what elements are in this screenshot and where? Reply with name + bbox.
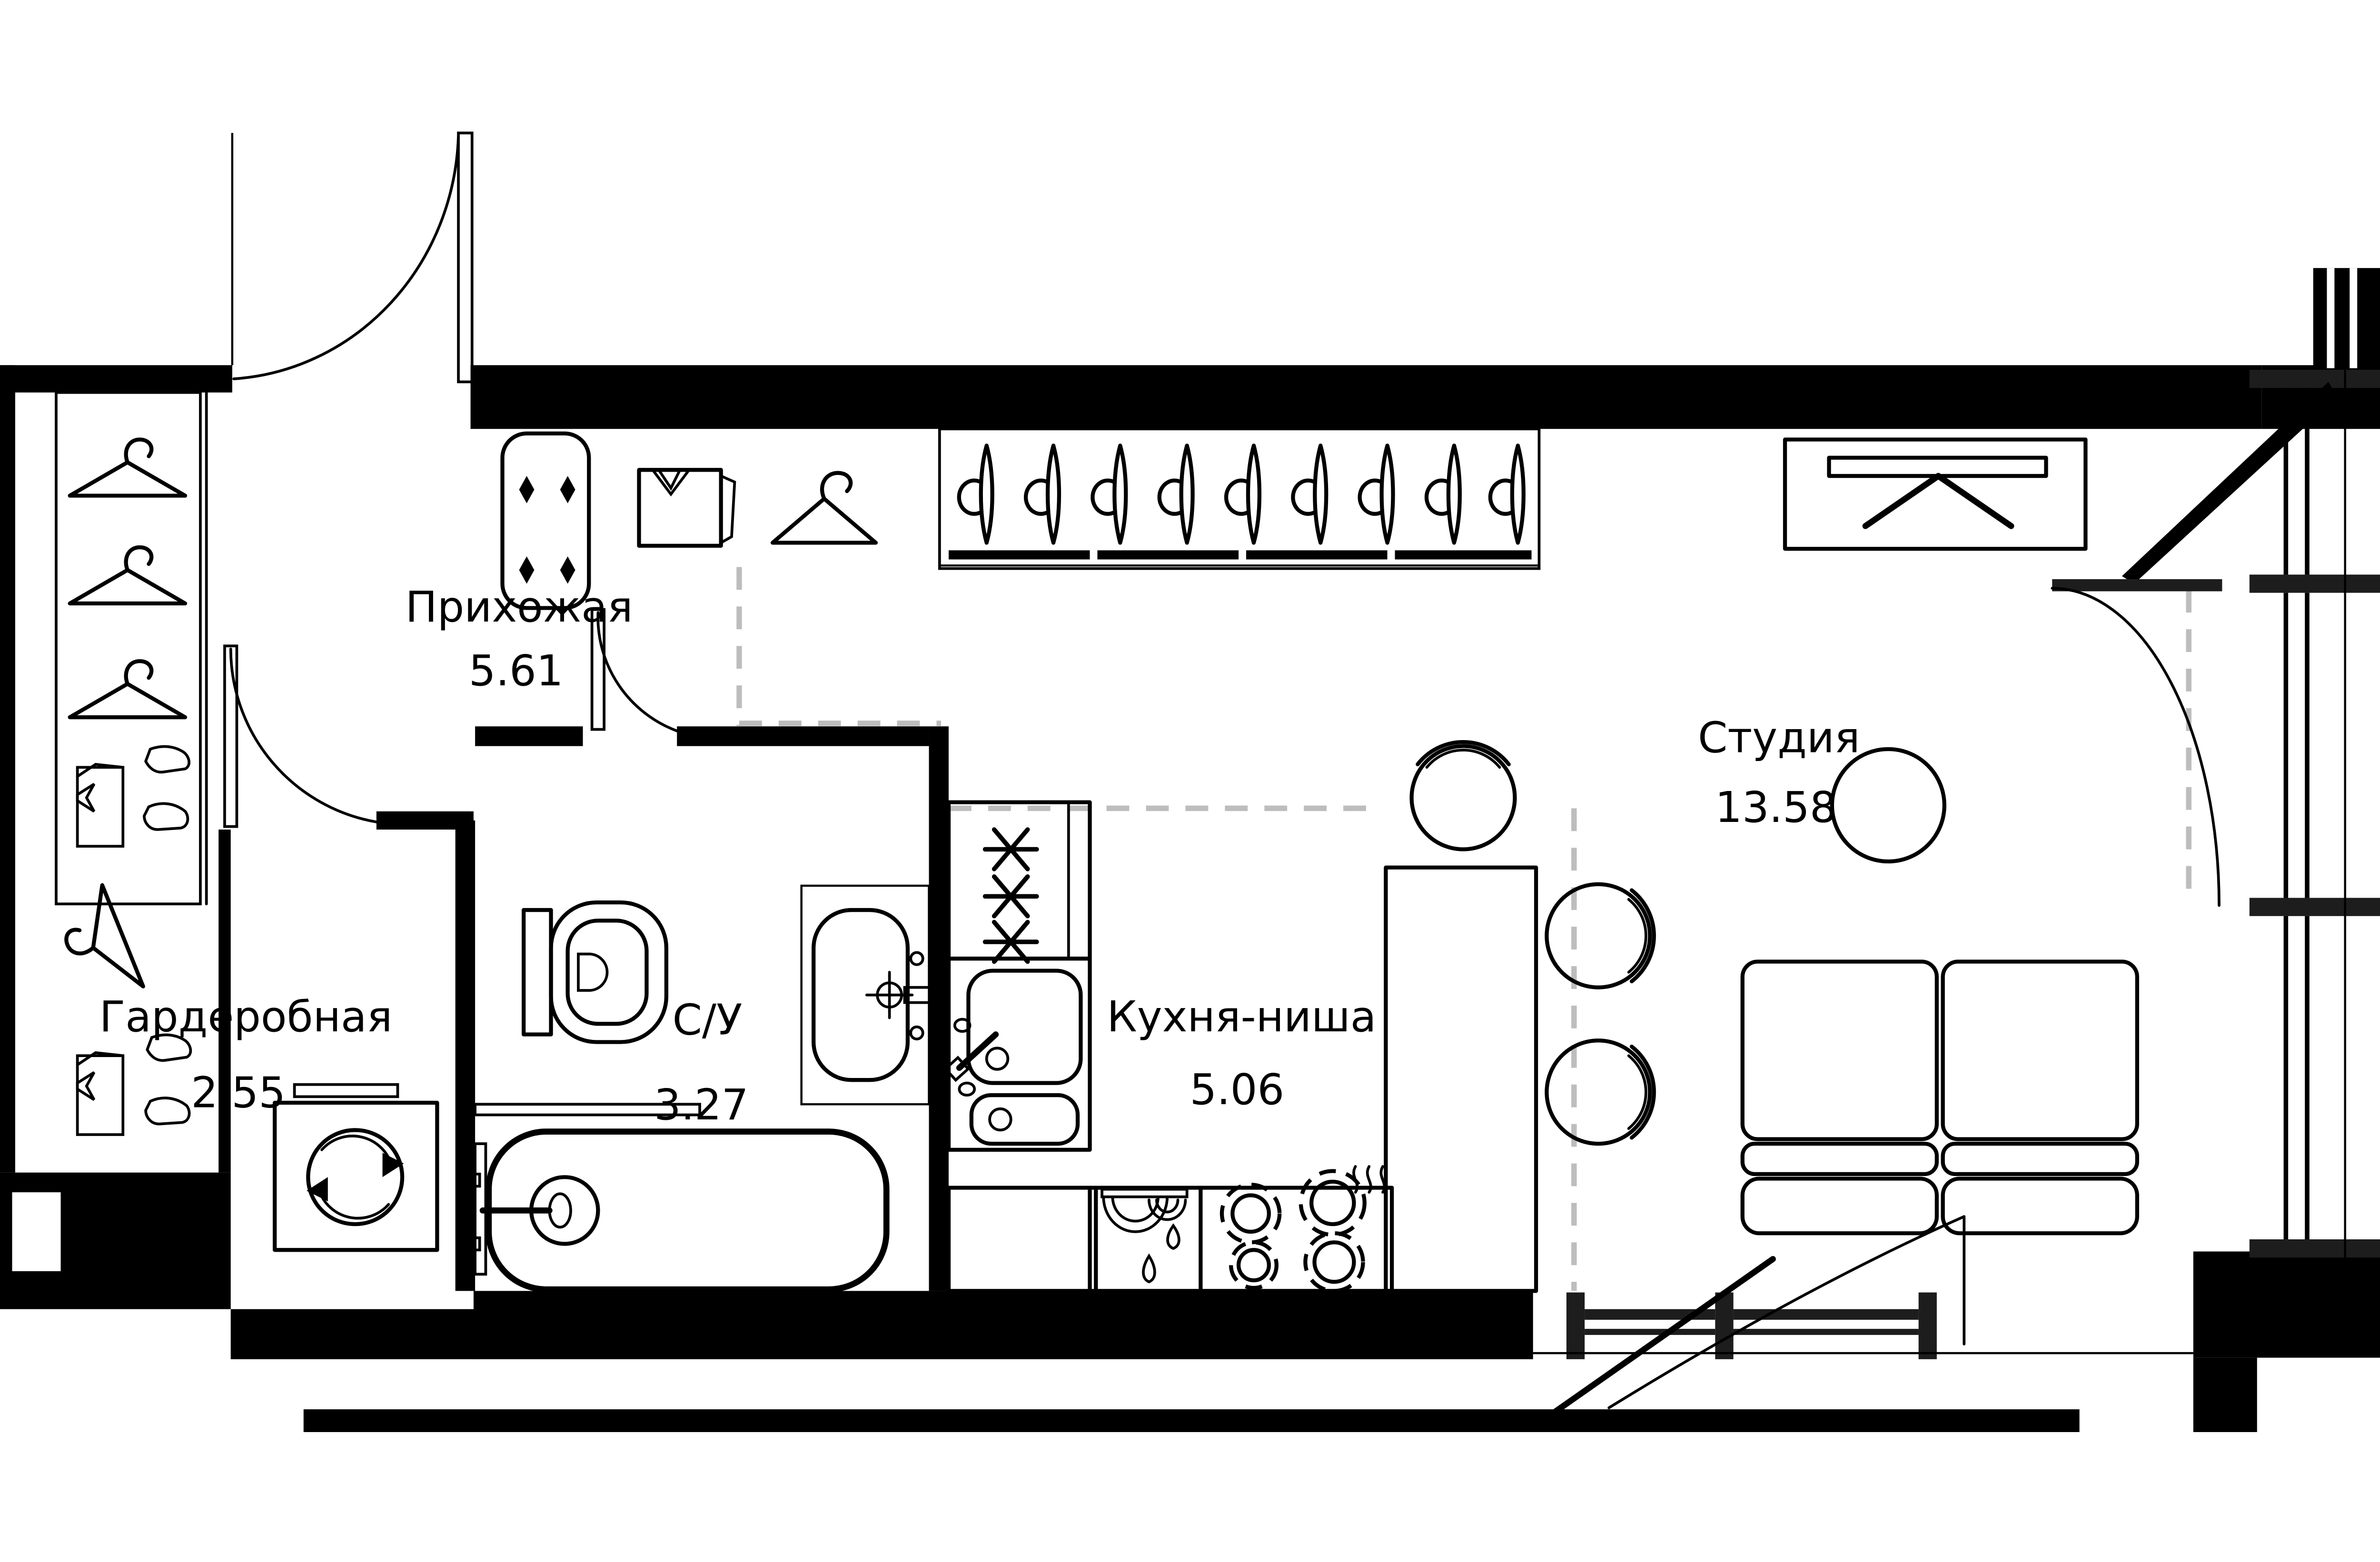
boots-icon [144, 746, 189, 830]
bath-faucet-icon [467, 1144, 571, 1274]
room-area-studio: 13.58 [1715, 783, 1837, 832]
closet-rack [940, 429, 1539, 568]
desk-icon [1785, 440, 2085, 549]
entrance-door [232, 133, 472, 382]
balcony-windows [1533, 1293, 2193, 1359]
balcony-window-door [2052, 579, 2222, 906]
stool-icon [1547, 884, 1654, 988]
folded-shirt-icon [78, 1053, 123, 1135]
floor-plan: Прихожая 5.61 Гардеробная 2.55 С/У 3.27 … [0, 0, 2380, 1562]
rack-hanger-icons [959, 445, 1524, 543]
right-windows [2052, 370, 2380, 1257]
side-table-icon [1832, 749, 1944, 861]
room-area-kitchen: 5.06 [1190, 1065, 1284, 1115]
sink-icon [802, 886, 932, 1104]
stool-icon [1547, 1040, 1654, 1144]
bar-stools [1412, 742, 1654, 1144]
room-label-kitchen: Кухня-ниша [1107, 992, 1376, 1042]
bathtub-icon [467, 1104, 886, 1289]
washing-machine-icon [275, 1085, 437, 1250]
floor-plan-page: Прихожая 5.61 Гардеробная 2.55 С/У 3.27 … [0, 0, 2380, 1562]
snowflake-icons [985, 830, 1037, 961]
hanger-icon [70, 440, 185, 718]
bench-icon [502, 434, 589, 608]
room-label-studio: Студия [1698, 713, 1860, 762]
room-label-bathroom: С/У [673, 996, 743, 1045]
room-area-hallway: 5.61 [469, 646, 564, 696]
hanger-icon [773, 473, 876, 543]
stove-icon [1222, 1167, 1385, 1291]
room-area-wardrobe: 2.55 [191, 1068, 286, 1118]
shirt-shelf-icon [639, 470, 734, 545]
room-label-wardrobe: Гардеробная [99, 992, 393, 1042]
wine-glasses-icon [1102, 1189, 1187, 1282]
boots-icon [146, 1035, 190, 1124]
folded-shirt-icon [78, 764, 123, 846]
walls [0, 268, 2380, 1432]
bar-counter [1386, 868, 1536, 1291]
wardrobe-door [225, 646, 377, 826]
toilet-icon [524, 902, 666, 1042]
room-label-hallway: Прихожая [406, 583, 633, 632]
room-area-bathroom: 3.27 [654, 1080, 749, 1130]
sofa-bed-icon [1743, 961, 2137, 1233]
faucet-icon [867, 952, 932, 1039]
kitchen-zone-boundary [739, 567, 1574, 1291]
hall-closet [56, 393, 207, 904]
window-glazing [2286, 370, 2345, 1257]
stool-icon [1412, 742, 1515, 849]
kitchen-counters [945, 802, 1392, 1291]
